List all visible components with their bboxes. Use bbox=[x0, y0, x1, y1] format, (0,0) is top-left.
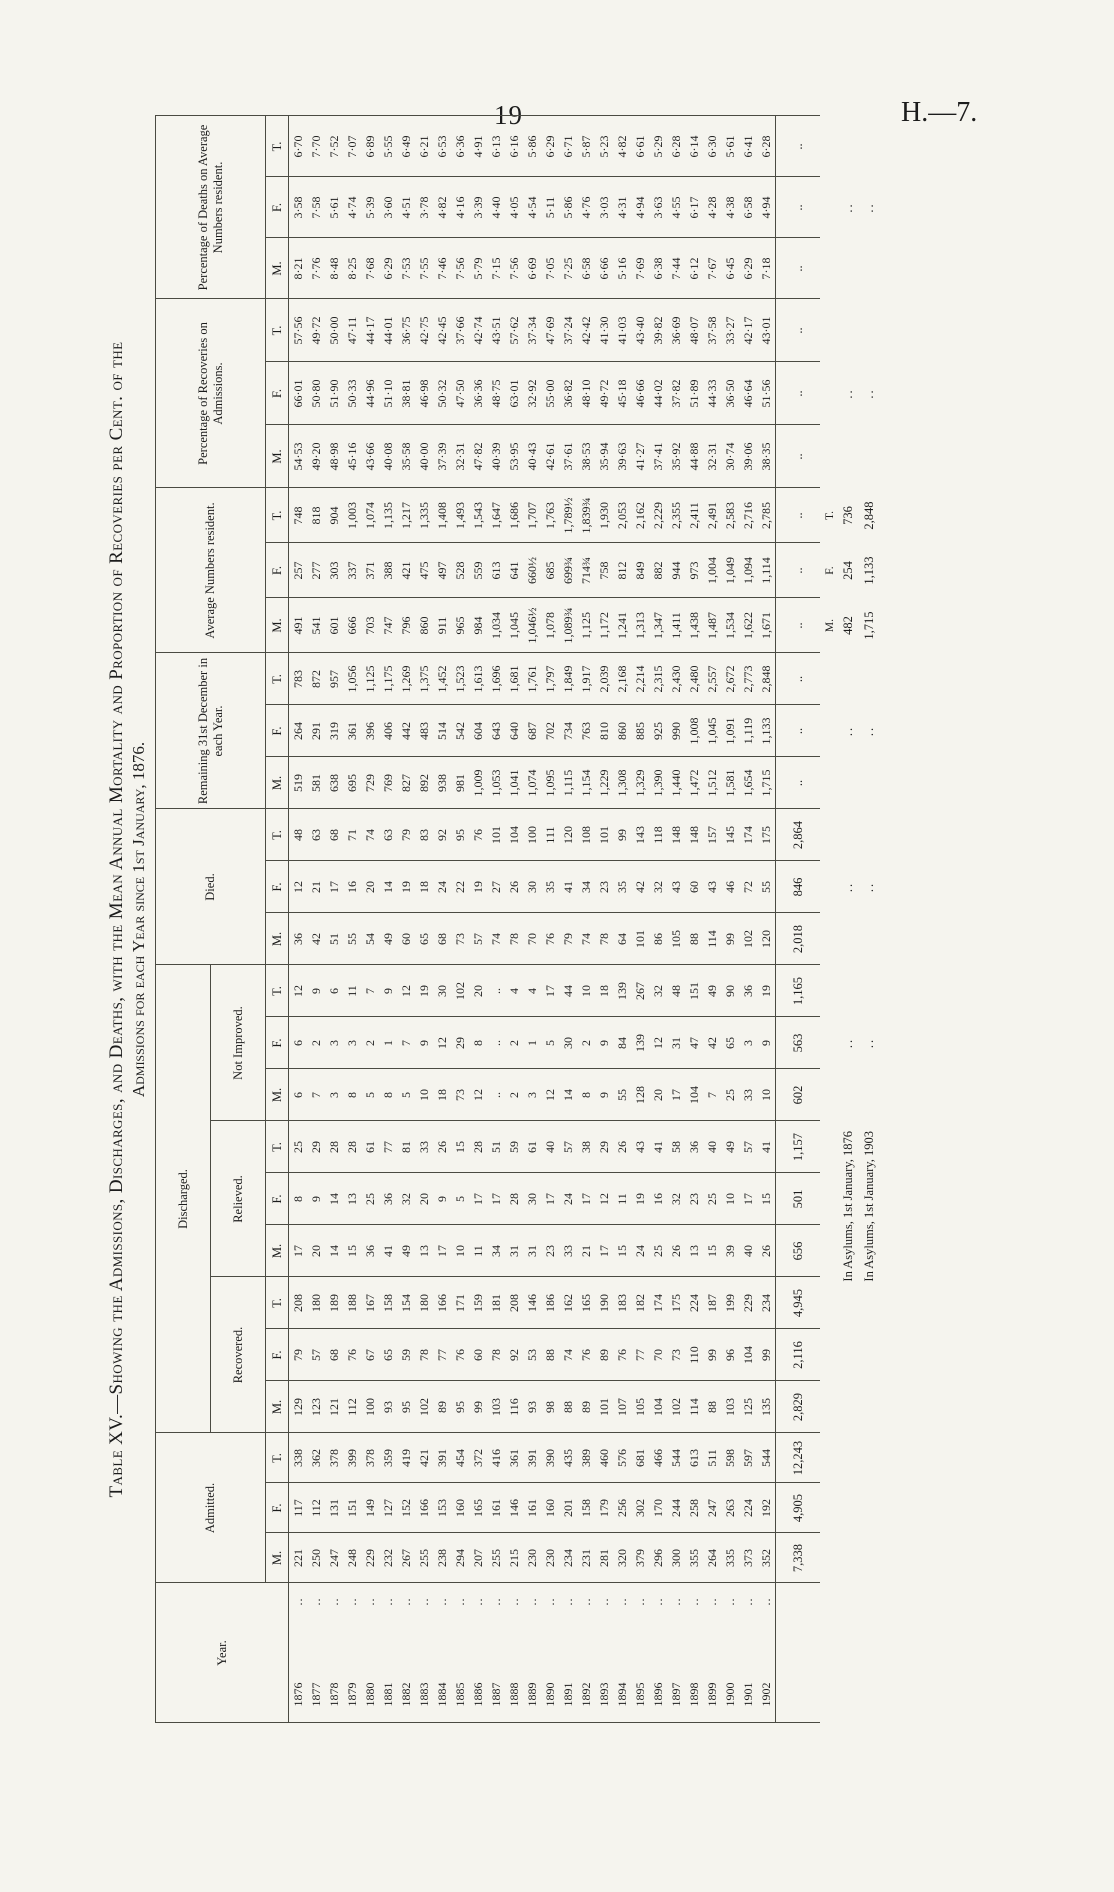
data-cell: 39·63 bbox=[613, 425, 631, 488]
data-cell: 50·00 bbox=[325, 299, 343, 362]
year-label: 1888 bbox=[507, 1683, 522, 1707]
data-cell: 118 bbox=[649, 809, 667, 861]
data-cell: 92 bbox=[505, 1329, 523, 1381]
data-cell: 154 bbox=[397, 1277, 415, 1329]
data-cell: 100 bbox=[523, 809, 541, 861]
data-cell: 95 bbox=[397, 1381, 415, 1433]
data-cell: 57 bbox=[469, 913, 487, 965]
data-cell: 7·53 bbox=[397, 238, 415, 299]
data-cell: 103 bbox=[487, 1381, 505, 1433]
data-cell: 51 bbox=[325, 913, 343, 965]
data-cell: 36·36 bbox=[469, 362, 487, 425]
data-cell: 166 bbox=[433, 1277, 451, 1329]
data-cell: 99 bbox=[703, 1329, 721, 1381]
year-inner: 1876.. bbox=[291, 1584, 306, 1723]
data-cell: 1,269 bbox=[397, 653, 415, 705]
data-cell: 19 bbox=[469, 861, 487, 913]
year-cell: 1897.. bbox=[667, 1583, 685, 1723]
table-row: 1901..3732245971251042294017573333610272… bbox=[739, 116, 757, 1723]
data-cell: 1,763 bbox=[541, 488, 559, 543]
data-cell: 48 bbox=[289, 809, 308, 861]
data-cell: 17 bbox=[325, 861, 343, 913]
year-cell: 1887.. bbox=[487, 1583, 505, 1723]
statistics-table: Year.Admitted.Discharged.Died.Remaining … bbox=[155, 116, 820, 1724]
data-cell: 714¾ bbox=[577, 543, 595, 598]
data-cell: 6·29 bbox=[379, 238, 397, 299]
data-cell: 40 bbox=[541, 1121, 559, 1173]
data-cell: 5·61 bbox=[721, 116, 739, 177]
year-label: 1891 bbox=[561, 1683, 576, 1707]
data-cell: 14 bbox=[325, 1225, 343, 1277]
totals-cell: .. bbox=[776, 177, 821, 238]
data-cell: 303 bbox=[325, 543, 343, 598]
data-cell: 9 bbox=[379, 965, 397, 1017]
table-row: 1879..2481513991127618815132883115516716… bbox=[343, 116, 361, 1723]
data-cell: 208 bbox=[505, 1277, 523, 1329]
totals-cell: 2,829 bbox=[776, 1381, 821, 1433]
data-cell: 23 bbox=[595, 861, 613, 913]
totals-cell: 602 bbox=[776, 1069, 821, 1121]
column-header-recovered: Recovered. bbox=[211, 1277, 266, 1433]
spacer-cell bbox=[822, 116, 838, 488]
data-cell: 9 bbox=[307, 965, 325, 1017]
data-cell: 234 bbox=[559, 1533, 577, 1583]
data-cell: 860 bbox=[415, 598, 433, 653]
data-cell: 6·29 bbox=[739, 238, 757, 299]
data-cell: 15 bbox=[343, 1225, 361, 1277]
data-cell: 127 bbox=[379, 1483, 397, 1533]
data-cell: 250 bbox=[307, 1533, 325, 1583]
data-cell: 1,115 bbox=[559, 757, 577, 809]
data-cell: 74 bbox=[361, 809, 379, 861]
data-cell: 36 bbox=[379, 1173, 397, 1225]
data-cell: 104 bbox=[685, 1069, 703, 1121]
footnote-dots: .. bbox=[838, 965, 859, 1121]
data-cell: 8 bbox=[379, 1069, 397, 1121]
year-leader-dots: .. bbox=[291, 1598, 306, 1606]
data-cell: 702 bbox=[541, 705, 559, 757]
year-inner: 1898.. bbox=[687, 1584, 702, 1723]
data-cell: 1,004 bbox=[703, 543, 721, 598]
data-cell: 1,125 bbox=[361, 653, 379, 705]
data-cell: 63 bbox=[307, 809, 325, 861]
year-cell: 1893.. bbox=[595, 1583, 613, 1723]
data-cell: 146 bbox=[523, 1277, 541, 1329]
data-cell: 15 bbox=[613, 1225, 631, 1277]
data-cell: 2 bbox=[577, 1017, 595, 1069]
footnote-dots: .. bbox=[838, 809, 859, 965]
year-label: 1899 bbox=[705, 1683, 720, 1707]
data-cell: 21 bbox=[577, 1225, 595, 1277]
data-cell: 1,686 bbox=[505, 488, 523, 543]
data-cell: 35 bbox=[613, 861, 631, 913]
data-cell: 2,162 bbox=[631, 488, 649, 543]
data-cell: 28 bbox=[325, 1121, 343, 1173]
data-cell: 171 bbox=[451, 1277, 469, 1329]
data-cell: 9 bbox=[415, 1017, 433, 1069]
table-title-line2: Admissions for each Year since 1st Janua… bbox=[129, 112, 149, 1727]
year-label: 1881 bbox=[381, 1683, 396, 1707]
data-cell: 10 bbox=[451, 1225, 469, 1277]
data-cell: 2 bbox=[361, 1017, 379, 1069]
data-cell: 6·13 bbox=[487, 116, 505, 177]
data-cell: 17 bbox=[541, 1173, 559, 1225]
data-cell: 51·89 bbox=[685, 362, 703, 425]
data-cell: 180 bbox=[415, 1277, 433, 1329]
data-cell: 160 bbox=[541, 1483, 559, 1533]
data-cell: 70 bbox=[649, 1329, 667, 1381]
year-label: 1890 bbox=[543, 1683, 558, 1707]
data-cell: 33 bbox=[415, 1121, 433, 1173]
data-cell: 36·75 bbox=[397, 299, 415, 362]
data-cell: 104 bbox=[505, 809, 523, 861]
data-cell: 872 bbox=[307, 653, 325, 705]
data-cell: 41 bbox=[649, 1121, 667, 1173]
data-cell: 14 bbox=[379, 861, 397, 913]
data-cell: 1,839¾ bbox=[577, 488, 595, 543]
data-cell: 981 bbox=[451, 757, 469, 809]
data-cell: 95 bbox=[451, 809, 469, 861]
data-cell: 362 bbox=[307, 1433, 325, 1483]
data-cell: 58 bbox=[667, 1121, 685, 1173]
data-cell: 25 bbox=[703, 1173, 721, 1225]
footnote-label: In Asylums, 1st January, 1876 bbox=[838, 1121, 859, 1723]
data-cell: 9 bbox=[307, 1173, 325, 1225]
data-cell: 112 bbox=[343, 1381, 361, 1433]
data-cell: 2,716 bbox=[739, 488, 757, 543]
data-cell: 6·71 bbox=[559, 116, 577, 177]
year-leader-dots: .. bbox=[741, 1598, 756, 1606]
data-cell: 123 bbox=[307, 1381, 325, 1433]
data-cell: 33 bbox=[559, 1225, 577, 1277]
data-cell: 1,045 bbox=[703, 705, 721, 757]
data-cell: 43·01 bbox=[757, 299, 776, 362]
year-label: 1880 bbox=[363, 1683, 378, 1707]
data-cell: 2,411 bbox=[685, 488, 703, 543]
year-inner: 1893.. bbox=[597, 1584, 612, 1723]
data-cell: 2 bbox=[307, 1017, 325, 1069]
data-cell: 1,003 bbox=[343, 488, 361, 543]
data-cell: 15 bbox=[703, 1225, 721, 1277]
footnote-row: In Asylums, 1st January, 1876......48225… bbox=[838, 116, 859, 1723]
year-cell: 1902.. bbox=[757, 1583, 776, 1723]
data-cell: 208 bbox=[289, 1277, 308, 1329]
rotated-table-area: Table XV.—Showing the Admissions, Discha… bbox=[104, 112, 914, 1727]
data-cell: 55·00 bbox=[541, 362, 559, 425]
data-cell: 638 bbox=[325, 757, 343, 809]
data-cell: 7·76 bbox=[307, 238, 325, 299]
year-cell: 1899.. bbox=[703, 1583, 721, 1723]
data-cell: 78 bbox=[415, 1329, 433, 1381]
totals-cell: .. bbox=[776, 757, 821, 809]
data-cell: 157 bbox=[703, 809, 721, 861]
data-cell: 7·56 bbox=[451, 238, 469, 299]
data-cell: 1,335 bbox=[415, 488, 433, 543]
data-cell: 6·28 bbox=[757, 116, 776, 177]
data-cell: 181 bbox=[487, 1277, 505, 1329]
data-cell: 139 bbox=[613, 965, 631, 1017]
year-leader-dots: .. bbox=[435, 1598, 450, 1606]
year-leader-dots: .. bbox=[507, 1598, 522, 1606]
footnote-dots: .. bbox=[859, 809, 880, 965]
data-cell: 20 bbox=[415, 1173, 433, 1225]
data-cell: 17 bbox=[577, 1173, 595, 1225]
data-cell: 1,438 bbox=[685, 598, 703, 653]
data-cell: 230 bbox=[541, 1533, 559, 1583]
data-cell: 46 bbox=[721, 861, 739, 913]
data-cell: 9 bbox=[433, 1173, 451, 1225]
data-cell: 257 bbox=[289, 543, 308, 598]
data-cell: 729 bbox=[361, 757, 379, 809]
data-cell: 81 bbox=[397, 1121, 415, 1173]
column-header-deaths_pct: Percentage of Deaths on Average Numbers … bbox=[156, 116, 266, 299]
data-cell: 39 bbox=[721, 1225, 739, 1277]
data-cell: 160 bbox=[451, 1483, 469, 1533]
data-cell: 32 bbox=[649, 861, 667, 913]
data-cell: 6 bbox=[325, 965, 343, 1017]
data-cell: 990 bbox=[667, 705, 685, 757]
data-cell: 25 bbox=[721, 1069, 739, 1121]
data-cell: 6·58 bbox=[739, 177, 757, 238]
year-leader-dots: .. bbox=[561, 1598, 576, 1606]
data-cell: 102 bbox=[451, 965, 469, 1017]
sex-header-f: F. bbox=[266, 705, 289, 757]
data-cell: 1,078 bbox=[541, 598, 559, 653]
data-cell: 6·89 bbox=[361, 116, 379, 177]
data-cell: 399 bbox=[343, 1433, 361, 1483]
data-cell: 20 bbox=[649, 1069, 667, 1121]
data-cell: 1,930 bbox=[595, 488, 613, 543]
data-cell: 44·01 bbox=[379, 299, 397, 362]
data-cell: 175 bbox=[667, 1277, 685, 1329]
data-cell: 7·58 bbox=[307, 177, 325, 238]
data-cell: 4·94 bbox=[757, 177, 776, 238]
data-cell: 151 bbox=[685, 965, 703, 1017]
data-cell: 514 bbox=[433, 705, 451, 757]
data-cell: .. bbox=[487, 1069, 505, 1121]
footnote-sex-header-m: M. bbox=[822, 598, 838, 653]
data-cell: 965 bbox=[451, 598, 469, 653]
year-inner: 1890.. bbox=[543, 1584, 558, 1723]
data-cell: 102 bbox=[667, 1381, 685, 1433]
data-cell: .. bbox=[487, 965, 505, 1017]
data-cell: 17 bbox=[487, 1173, 505, 1225]
data-cell: 37·66 bbox=[451, 299, 469, 362]
data-cell: 57 bbox=[307, 1329, 325, 1381]
data-cell: 1,375 bbox=[415, 653, 433, 705]
data-cell: 613 bbox=[487, 543, 505, 598]
data-cell: 2 bbox=[505, 1017, 523, 1069]
year-inner: 1880.. bbox=[363, 1584, 378, 1723]
data-cell: 734 bbox=[559, 705, 577, 757]
data-cell: 135 bbox=[757, 1381, 776, 1433]
data-cell: 1,094 bbox=[739, 543, 757, 598]
year-label: 1895 bbox=[633, 1683, 648, 1707]
data-cell: 1,647 bbox=[487, 488, 505, 543]
data-cell: 7·56 bbox=[505, 238, 523, 299]
data-cell: 320 bbox=[613, 1533, 631, 1583]
year-label: 1883 bbox=[417, 1683, 432, 1707]
data-cell: 3 bbox=[739, 1017, 757, 1069]
data-cell: .. bbox=[487, 1017, 505, 1069]
totals-cell: .. bbox=[776, 705, 821, 757]
data-cell: 390 bbox=[541, 1433, 559, 1483]
data-cell: 36 bbox=[685, 1121, 703, 1173]
data-cell: 2,785 bbox=[757, 488, 776, 543]
data-cell: 36·50 bbox=[721, 362, 739, 425]
sex-header-f: F. bbox=[266, 177, 289, 238]
footnote-sex-header-t: T. bbox=[822, 488, 838, 543]
data-cell: 42·17 bbox=[739, 299, 757, 362]
data-cell: 454 bbox=[451, 1433, 469, 1483]
data-cell: 153 bbox=[433, 1483, 451, 1533]
data-cell: 174 bbox=[739, 809, 757, 861]
sex-header-t: T. bbox=[266, 116, 289, 177]
data-cell: 131 bbox=[325, 1483, 343, 1533]
table-row: 1891..2342014358874162332457143044794112… bbox=[559, 116, 577, 1723]
data-cell: 460 bbox=[595, 1433, 613, 1483]
data-cell: 232 bbox=[379, 1533, 397, 1583]
totals-cell: 501 bbox=[776, 1173, 821, 1225]
year-inner: 1887.. bbox=[489, 1584, 504, 1723]
data-cell: 49 bbox=[379, 913, 397, 965]
data-cell: 1,390 bbox=[649, 757, 667, 809]
data-cell: 421 bbox=[415, 1433, 433, 1483]
data-cell: 255 bbox=[415, 1533, 433, 1583]
year-cell: 1880.. bbox=[361, 1583, 379, 1723]
data-cell: 37·24 bbox=[559, 299, 577, 362]
data-cell: 43 bbox=[631, 1121, 649, 1173]
data-cell: 263 bbox=[721, 1483, 739, 1533]
data-cell: 8 bbox=[289, 1173, 308, 1225]
data-cell: 76 bbox=[451, 1329, 469, 1381]
totals-cell: .. bbox=[776, 598, 821, 653]
data-cell: 660½ bbox=[523, 543, 541, 598]
data-cell: 22 bbox=[451, 861, 469, 913]
data-cell: 957 bbox=[325, 653, 343, 705]
data-cell: 12 bbox=[397, 965, 415, 1017]
data-cell: 105 bbox=[667, 913, 685, 965]
data-cell: 1,472 bbox=[685, 757, 703, 809]
data-cell: 74 bbox=[487, 913, 505, 965]
data-cell: 3·58 bbox=[289, 177, 308, 238]
data-cell: 7·69 bbox=[631, 238, 649, 299]
data-cell: 46·64 bbox=[739, 362, 757, 425]
data-cell: 1,797 bbox=[541, 653, 559, 705]
data-cell: 186 bbox=[541, 1277, 559, 1329]
table-row: 1883..2551664211027818013203310919651883… bbox=[415, 116, 433, 1723]
year-leader-dots: .. bbox=[651, 1598, 666, 1606]
data-cell: 180 bbox=[307, 1277, 325, 1329]
data-cell: 25 bbox=[649, 1225, 667, 1277]
data-cell: 103 bbox=[721, 1381, 739, 1433]
sex-header-t: T. bbox=[266, 653, 289, 705]
data-cell: 48 bbox=[667, 965, 685, 1017]
data-cell: 371 bbox=[361, 543, 379, 598]
data-cell: 4·82 bbox=[433, 177, 451, 238]
data-cell: 1,008 bbox=[685, 705, 703, 757]
data-cell: 99 bbox=[469, 1381, 487, 1433]
data-cell: 281 bbox=[595, 1533, 613, 1583]
year-leader-dots: .. bbox=[543, 1598, 558, 1606]
data-cell: 65 bbox=[415, 913, 433, 965]
sex-header-m: M. bbox=[266, 1533, 289, 1583]
data-cell: 372 bbox=[469, 1433, 487, 1483]
sex-header-m: M. bbox=[266, 1381, 289, 1433]
header-mft-row: M.F.T.M.F.T.M.F.T.M.F.T.M.F.T.M.F.T.M.F.… bbox=[266, 116, 289, 1723]
data-cell: 277 bbox=[307, 543, 325, 598]
data-cell: 4·05 bbox=[505, 177, 523, 238]
data-cell: 378 bbox=[325, 1433, 343, 1483]
totals-cell: 656 bbox=[776, 1225, 821, 1277]
footnote-dots: .. bbox=[859, 299, 880, 488]
data-cell: 1,053 bbox=[487, 757, 505, 809]
data-cell: 466 bbox=[649, 1433, 667, 1483]
data-cell: 699¾ bbox=[559, 543, 577, 598]
sex-header-f: F. bbox=[266, 1483, 289, 1533]
data-cell: 221 bbox=[289, 1533, 308, 1583]
year-inner: 1877.. bbox=[309, 1584, 324, 1723]
data-cell: 43 bbox=[703, 861, 721, 913]
data-cell: 38·53 bbox=[577, 425, 595, 488]
data-cell: 267 bbox=[631, 965, 649, 1017]
data-cell: 96 bbox=[721, 1329, 739, 1381]
data-cell: 1,408 bbox=[433, 488, 451, 543]
year-leader-dots: .. bbox=[381, 1598, 396, 1606]
data-cell: 16 bbox=[649, 1173, 667, 1225]
data-cell: 19 bbox=[415, 965, 433, 1017]
data-cell: 95 bbox=[451, 1381, 469, 1433]
data-cell: 12 bbox=[649, 1017, 667, 1069]
totals-cell: 2,864 bbox=[776, 809, 821, 861]
data-cell: 48·75 bbox=[487, 362, 505, 425]
data-cell: 37·39 bbox=[433, 425, 451, 488]
data-cell: 1,125 bbox=[577, 598, 595, 653]
data-cell: 48·10 bbox=[577, 362, 595, 425]
data-cell: 4·31 bbox=[613, 177, 631, 238]
year-leader-dots: .. bbox=[363, 1598, 378, 1606]
year-inner: 1884.. bbox=[435, 1584, 450, 1723]
year-cell: 1901.. bbox=[739, 1583, 757, 1723]
data-cell: 6·36 bbox=[451, 116, 469, 177]
data-cell: 35·92 bbox=[667, 425, 685, 488]
data-cell: 55 bbox=[757, 861, 776, 913]
data-cell: 66·01 bbox=[289, 362, 308, 425]
data-cell: 256 bbox=[613, 1483, 631, 1533]
data-cell: 88 bbox=[685, 913, 703, 965]
data-cell: 3·63 bbox=[649, 177, 667, 238]
footnote-value: 254 bbox=[838, 543, 859, 598]
data-cell: 34 bbox=[487, 1225, 505, 1277]
data-cell: 416 bbox=[487, 1433, 505, 1483]
data-cell: 3·39 bbox=[469, 177, 487, 238]
data-cell: 1,135 bbox=[379, 488, 397, 543]
data-cell: 544 bbox=[667, 1433, 685, 1483]
footnote-sex-header-f: F. bbox=[822, 543, 838, 598]
data-cell: 29 bbox=[307, 1121, 325, 1173]
data-cell: 10 bbox=[721, 1173, 739, 1225]
data-cell: 161 bbox=[523, 1483, 541, 1533]
year-inner: 1889.. bbox=[525, 1584, 540, 1723]
year-leader-dots: .. bbox=[327, 1598, 342, 1606]
year-label: 1898 bbox=[687, 1683, 702, 1707]
data-cell: 26 bbox=[505, 861, 523, 913]
year-leader-dots: .. bbox=[345, 1598, 360, 1606]
data-cell: 6·29 bbox=[541, 116, 559, 177]
data-cell: 4·28 bbox=[703, 177, 721, 238]
data-cell: 2,557 bbox=[703, 653, 721, 705]
data-cell: 5 bbox=[451, 1173, 469, 1225]
